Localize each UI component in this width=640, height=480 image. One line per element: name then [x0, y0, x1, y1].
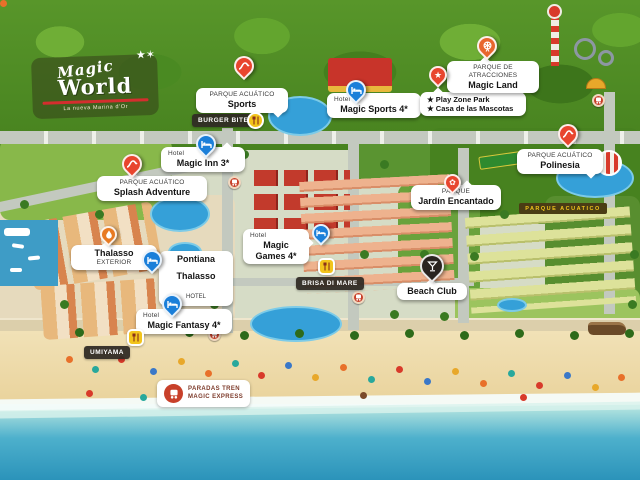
waterslide-icon [124, 156, 140, 172]
ferris-wheel-icon [479, 38, 495, 54]
magic-sports-hotel-label[interactable]: Hotel Magic Sports 4* [327, 93, 421, 118]
bed-icon [198, 136, 214, 152]
legend-line2: MAGIC EXPRESS [188, 394, 243, 402]
paradas-tren-legend[interactable]: PARADAS TREN MAGIC EXPRESS [157, 380, 250, 407]
train-stop-icon [164, 384, 183, 403]
umiyama-badge[interactable]: UMIYAMA [84, 346, 130, 359]
splash-adventure-pool [150, 196, 210, 232]
legend-line1: PARADAS TREN [188, 386, 243, 394]
legend-text: PARADAS TREN MAGIC EXPRESS [188, 386, 243, 402]
spa-droplet-icon [102, 228, 115, 241]
fork-knife-icon [132, 333, 140, 342]
beach-club-label[interactable]: Beach Club [397, 283, 467, 300]
label-name: Splash Adventure [104, 187, 200, 198]
main-road [0, 131, 640, 144]
train-icon [595, 97, 602, 104]
play-zone-label[interactable]: ★ Play Zone Park ★ Casa de las Mascotas [420, 92, 526, 116]
fork-knife-icon [323, 262, 331, 271]
train-icon [231, 179, 238, 186]
splash-adventure-label[interactable]: PARQUE ACUÁTICO Splash Adventure [97, 176, 207, 201]
train-stop-marker[interactable] [592, 94, 605, 107]
label-category: Hotel [250, 232, 302, 240]
coaster-loop-2 [598, 50, 614, 66]
palm-trees [0, 0, 9, 9]
cocktail-icon [422, 256, 442, 276]
train-icon [169, 389, 179, 399]
label-name: Magic Games 4* [250, 240, 302, 262]
polinesia-label[interactable]: PARQUE ACUÁTICO Polinesia [517, 149, 603, 174]
lagoon-pool [250, 306, 342, 342]
label-name: Pontiana [166, 254, 226, 265]
magic-games-hotel-label[interactable]: Hotel Magic Games 4* [243, 229, 309, 264]
label-category: Hotel [143, 312, 225, 320]
label-name: Magic Fantasy 4* [143, 320, 225, 331]
label-name: Magic Inn 3* [168, 158, 238, 169]
resort-map: PARQUE ACUATICO ★✶ Magic World La nueva … [0, 0, 640, 480]
train-stop-marker[interactable] [352, 291, 365, 304]
yacht [4, 228, 30, 236]
label-category: PARQUE ACUÁTICO [524, 152, 596, 160]
label-category: PARQUE ACUÁTICO [104, 179, 200, 187]
label-category: PARQUE ACUÁTICO [203, 91, 281, 99]
beached-boat [588, 322, 626, 335]
parque-acuatico-art-sign: PARQUE ACUATICO [519, 203, 607, 214]
restaurant-icon-brisa[interactable] [318, 258, 335, 275]
drop-tower [551, 14, 559, 66]
bed-icon [164, 296, 180, 312]
magic-fantasy-hotel-label[interactable]: Hotel Magic Fantasy 4* [136, 309, 232, 334]
bed-icon [348, 82, 364, 98]
train-icon [355, 294, 362, 301]
bed-icon [314, 226, 328, 240]
label-sub: EXTERIOR [78, 259, 150, 267]
bed-icon [144, 252, 160, 268]
flower-icon: ✿ [446, 176, 459, 189]
coaster-loop-1 [574, 38, 596, 60]
label-category: Hotel [334, 96, 414, 104]
drop-tower-top [547, 4, 562, 19]
label-name: Thalasso [78, 248, 150, 259]
condo-rows-right [465, 206, 636, 313]
label-name: Magic Sports 4* [334, 104, 414, 115]
label-name2: Thalasso [176, 271, 215, 281]
restaurant-icon-umiyama[interactable] [127, 329, 144, 346]
fork-knife-icon [252, 116, 260, 125]
label-suffix: HOTEL [186, 294, 206, 300]
star-icon: ★ [431, 68, 445, 82]
sports-waterpark-label[interactable]: PARQUE ACUÁTICO Sports [196, 88, 288, 113]
magic-land-label[interactable]: PARQUE DE ATRACCIONES Magic Land [447, 61, 539, 93]
label-category: PARQUE DE ATRACCIONES [454, 64, 532, 80]
logo-tagline: La nueva Marina d'Or [41, 103, 151, 113]
label-name: Jardín Encantado [418, 196, 494, 207]
label-line1: ★ Play Zone Park [427, 95, 519, 104]
waterslide-icon [236, 58, 252, 74]
label-name: Polinesia [524, 160, 596, 171]
condo-pool [497, 298, 527, 312]
logo-stars-icon: ★✶ [136, 48, 156, 62]
label-name: Sports [203, 99, 281, 110]
label-name: Beach Club [404, 286, 460, 297]
magic-world-logo: ★✶ Magic World La nueva Marina d'Or [31, 54, 159, 119]
restaurant-icon-burger[interactable] [247, 112, 264, 129]
boat-3 [10, 268, 22, 272]
label-line2: ★ Casa de las Mascotas [427, 104, 519, 113]
label-name: Magic Land [454, 80, 532, 91]
waterslide-icon [560, 126, 576, 142]
brisa-di-mare-badge[interactable]: BRISA DI MARE [296, 277, 364, 290]
train-stop-marker[interactable] [228, 176, 241, 189]
